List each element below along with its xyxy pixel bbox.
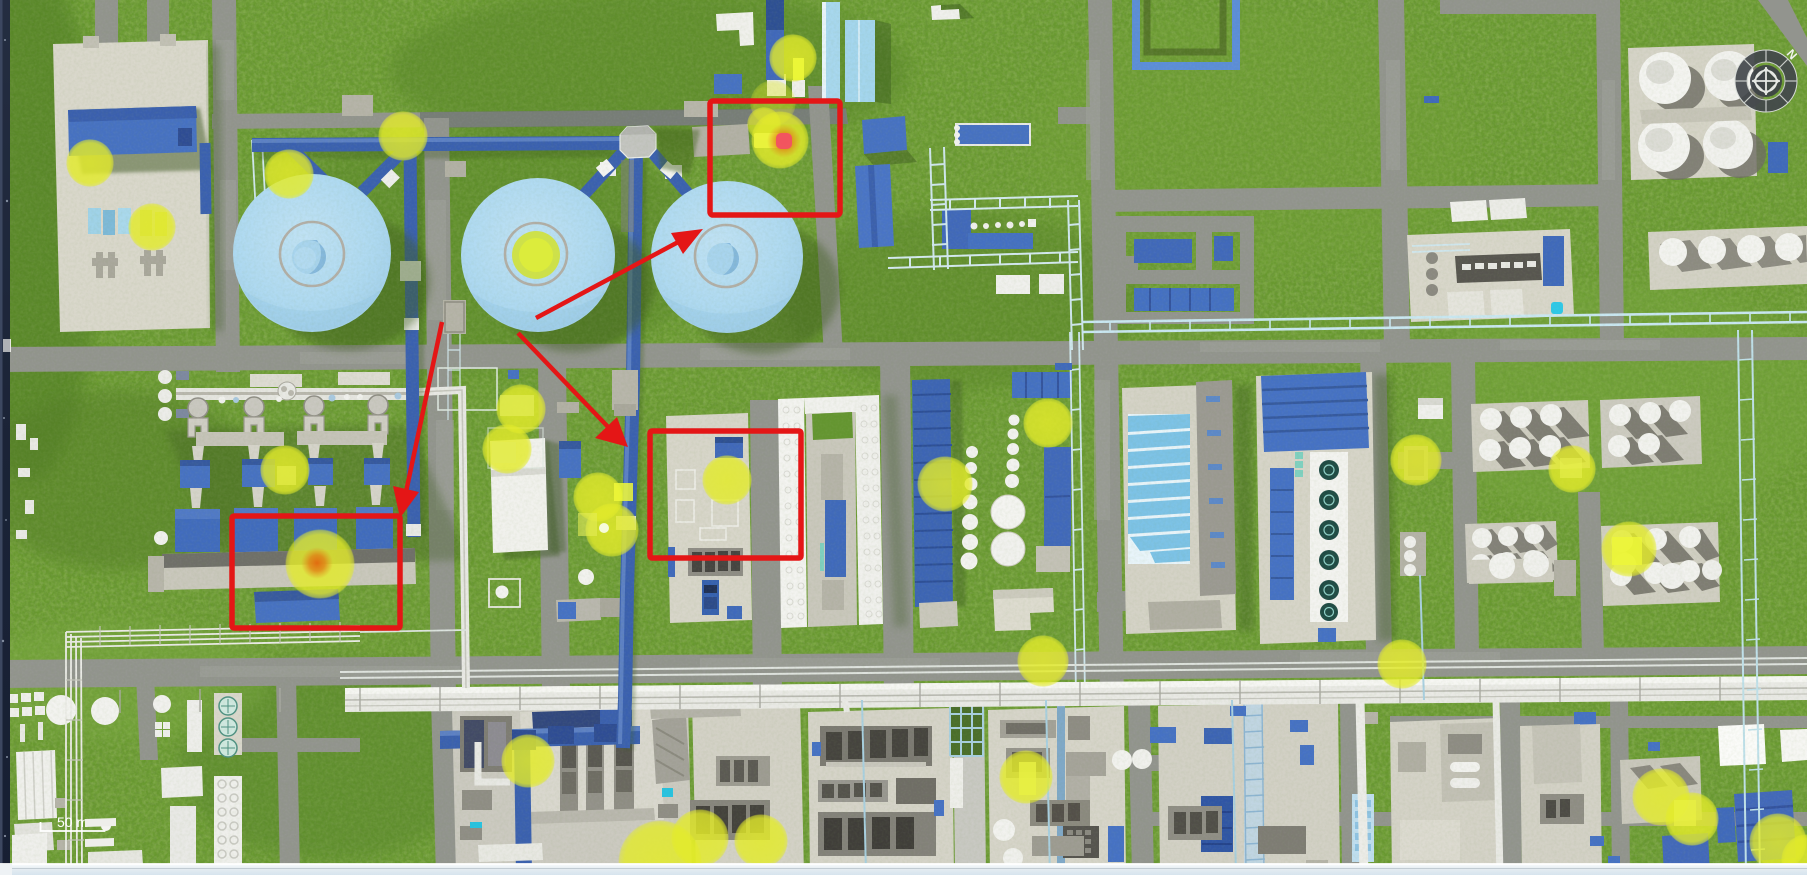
svg-text:50 m: 50 m xyxy=(57,814,88,830)
